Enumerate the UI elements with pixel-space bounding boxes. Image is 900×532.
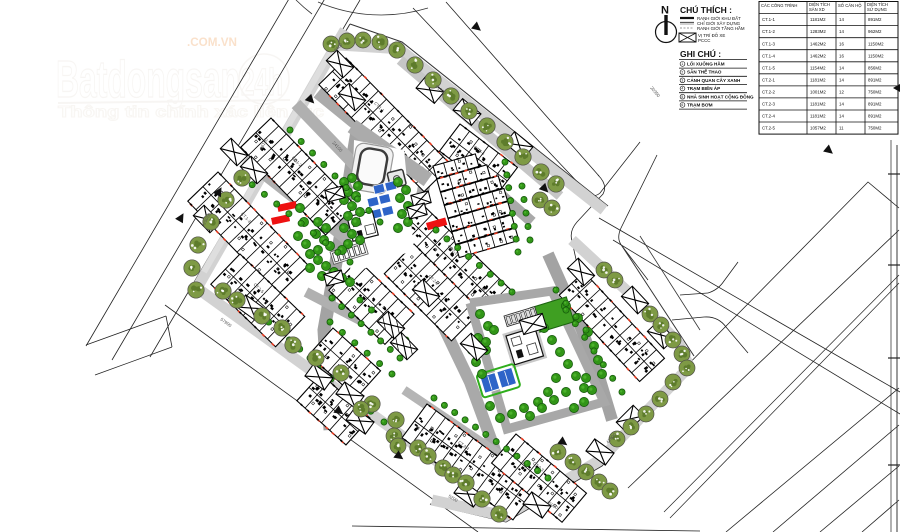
svg-text:891M2: 891M2 <box>868 102 882 107</box>
svg-text:12: 12 <box>839 90 844 95</box>
svg-text:962M2: 962M2 <box>868 29 882 34</box>
svg-text:1150M2: 1150M2 <box>868 53 884 58</box>
svg-text:1150M2: 1150M2 <box>868 41 884 46</box>
svg-text:CT.2-2: CT.2-2 <box>762 90 775 95</box>
svg-text:1: 1 <box>681 62 683 66</box>
svg-text:14: 14 <box>839 77 844 82</box>
svg-text:CT.2-1: CT.2-1 <box>762 77 775 82</box>
svg-text:14: 14 <box>839 29 844 34</box>
svg-text:CẢNH QUAN CÂY XANH: CẢNH QUAN CÂY XANH <box>687 77 741 83</box>
svg-text:CT.1-2: CT.1-2 <box>762 29 775 34</box>
svg-text:1001M2: 1001M2 <box>810 90 826 95</box>
svg-text:PCCC: PCCC <box>698 38 710 43</box>
svg-text:891M2: 891M2 <box>868 17 882 22</box>
svg-text:SÂN THỂ THAO: SÂN THỂ THAO <box>687 69 722 75</box>
svg-text:GHI CHÚ :: GHI CHÚ : <box>680 48 721 59</box>
svg-text:6: 6 <box>681 103 683 107</box>
svg-text:14: 14 <box>839 114 844 119</box>
svg-text:N: N <box>661 5 669 17</box>
svg-text:.COM.VN: .COM.VN <box>187 35 237 49</box>
svg-text:14: 14 <box>839 102 844 107</box>
svg-text:1462M2: 1462M2 <box>810 53 826 58</box>
svg-text:750M2: 750M2 <box>868 90 882 95</box>
svg-text:16: 16 <box>839 41 844 46</box>
svg-text:TRẠM BIẾN ÁP: TRẠM BIẾN ÁP <box>687 85 720 91</box>
svg-text:11: 11 <box>839 126 844 131</box>
svg-text:NHÀ SINH HOẠT CỘNG ĐỒNG: NHÀ SINH HOẠT CỘNG ĐỒNG <box>687 92 754 99</box>
svg-text:CT.1-3: CT.1-3 <box>762 41 775 46</box>
svg-text:1283M2: 1283M2 <box>810 29 826 34</box>
svg-text:891M2: 891M2 <box>868 114 882 119</box>
svg-text:CT.2-3: CT.2-3 <box>762 102 775 107</box>
svg-text:2: 2 <box>681 70 683 74</box>
svg-text:3: 3 <box>681 79 683 83</box>
svg-text:1057M2: 1057M2 <box>810 126 826 131</box>
svg-text:CT.2-5: CT.2-5 <box>762 126 775 131</box>
svg-text:LỐI XUỐNG HẦM: LỐI XUỐNG HẦM <box>687 61 725 67</box>
svg-text:14: 14 <box>839 65 844 70</box>
svg-text:1181M2: 1181M2 <box>810 114 826 119</box>
svg-text:CT.1-1: CT.1-1 <box>762 17 775 22</box>
svg-text:14: 14 <box>839 17 844 22</box>
svg-text:CHÚ THÍCH :: CHÚ THÍCH : <box>680 4 732 15</box>
svg-text:4: 4 <box>681 87 683 91</box>
svg-text:1154M2: 1154M2 <box>810 65 826 70</box>
svg-text:1181M2: 1181M2 <box>810 77 826 82</box>
svg-text:CT.2-4: CT.2-4 <box>762 114 775 119</box>
svg-text:CT.1-4: CT.1-4 <box>762 53 775 58</box>
svg-text:1181M2: 1181M2 <box>810 102 826 107</box>
svg-text:5: 5 <box>681 95 683 99</box>
svg-text:891M2: 891M2 <box>868 77 882 82</box>
svg-text:SỬ DỤNG: SỬ DỤNG <box>867 7 887 12</box>
svg-text:SÀN XD: SÀN XD <box>809 7 825 12</box>
svg-text:CÁC CÔNG TRÌNH: CÁC CÔNG TRÌNH <box>761 3 797 8</box>
svg-text:1181M2: 1181M2 <box>810 17 826 22</box>
svg-text:RANH GIỚI TẦNG HẦM: RANH GIỚI TẦNG HẦM <box>697 26 745 31</box>
svg-text:TRẠM BƠM: TRẠM BƠM <box>687 103 713 108</box>
svg-text:1462M2: 1462M2 <box>810 41 826 46</box>
svg-text:856M2: 856M2 <box>868 65 882 70</box>
svg-text:16: 16 <box>839 53 844 58</box>
svg-text:750M2: 750M2 <box>868 126 882 131</box>
svg-text:CT.1-5: CT.1-5 <box>762 65 775 70</box>
svg-text:SỐ CĂN HỘ: SỐ CĂN HỘ <box>838 3 862 8</box>
svg-text:Thông tin chính xác liên tục: Thông tin chính xác liên tục <box>58 104 324 121</box>
